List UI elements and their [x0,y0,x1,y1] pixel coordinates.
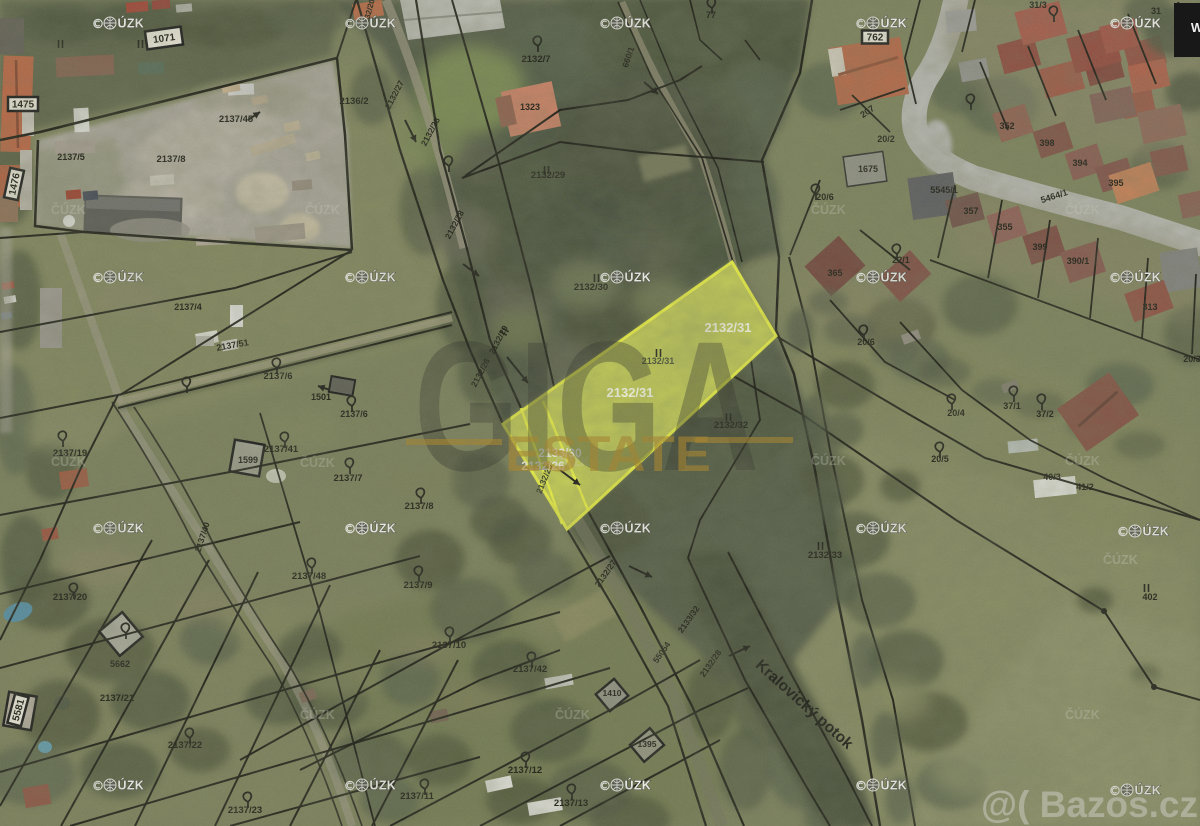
svg-text:@( Bazos.cz: @( Bazos.cz [981,784,1198,825]
svg-text:W: W [1191,20,1200,35]
